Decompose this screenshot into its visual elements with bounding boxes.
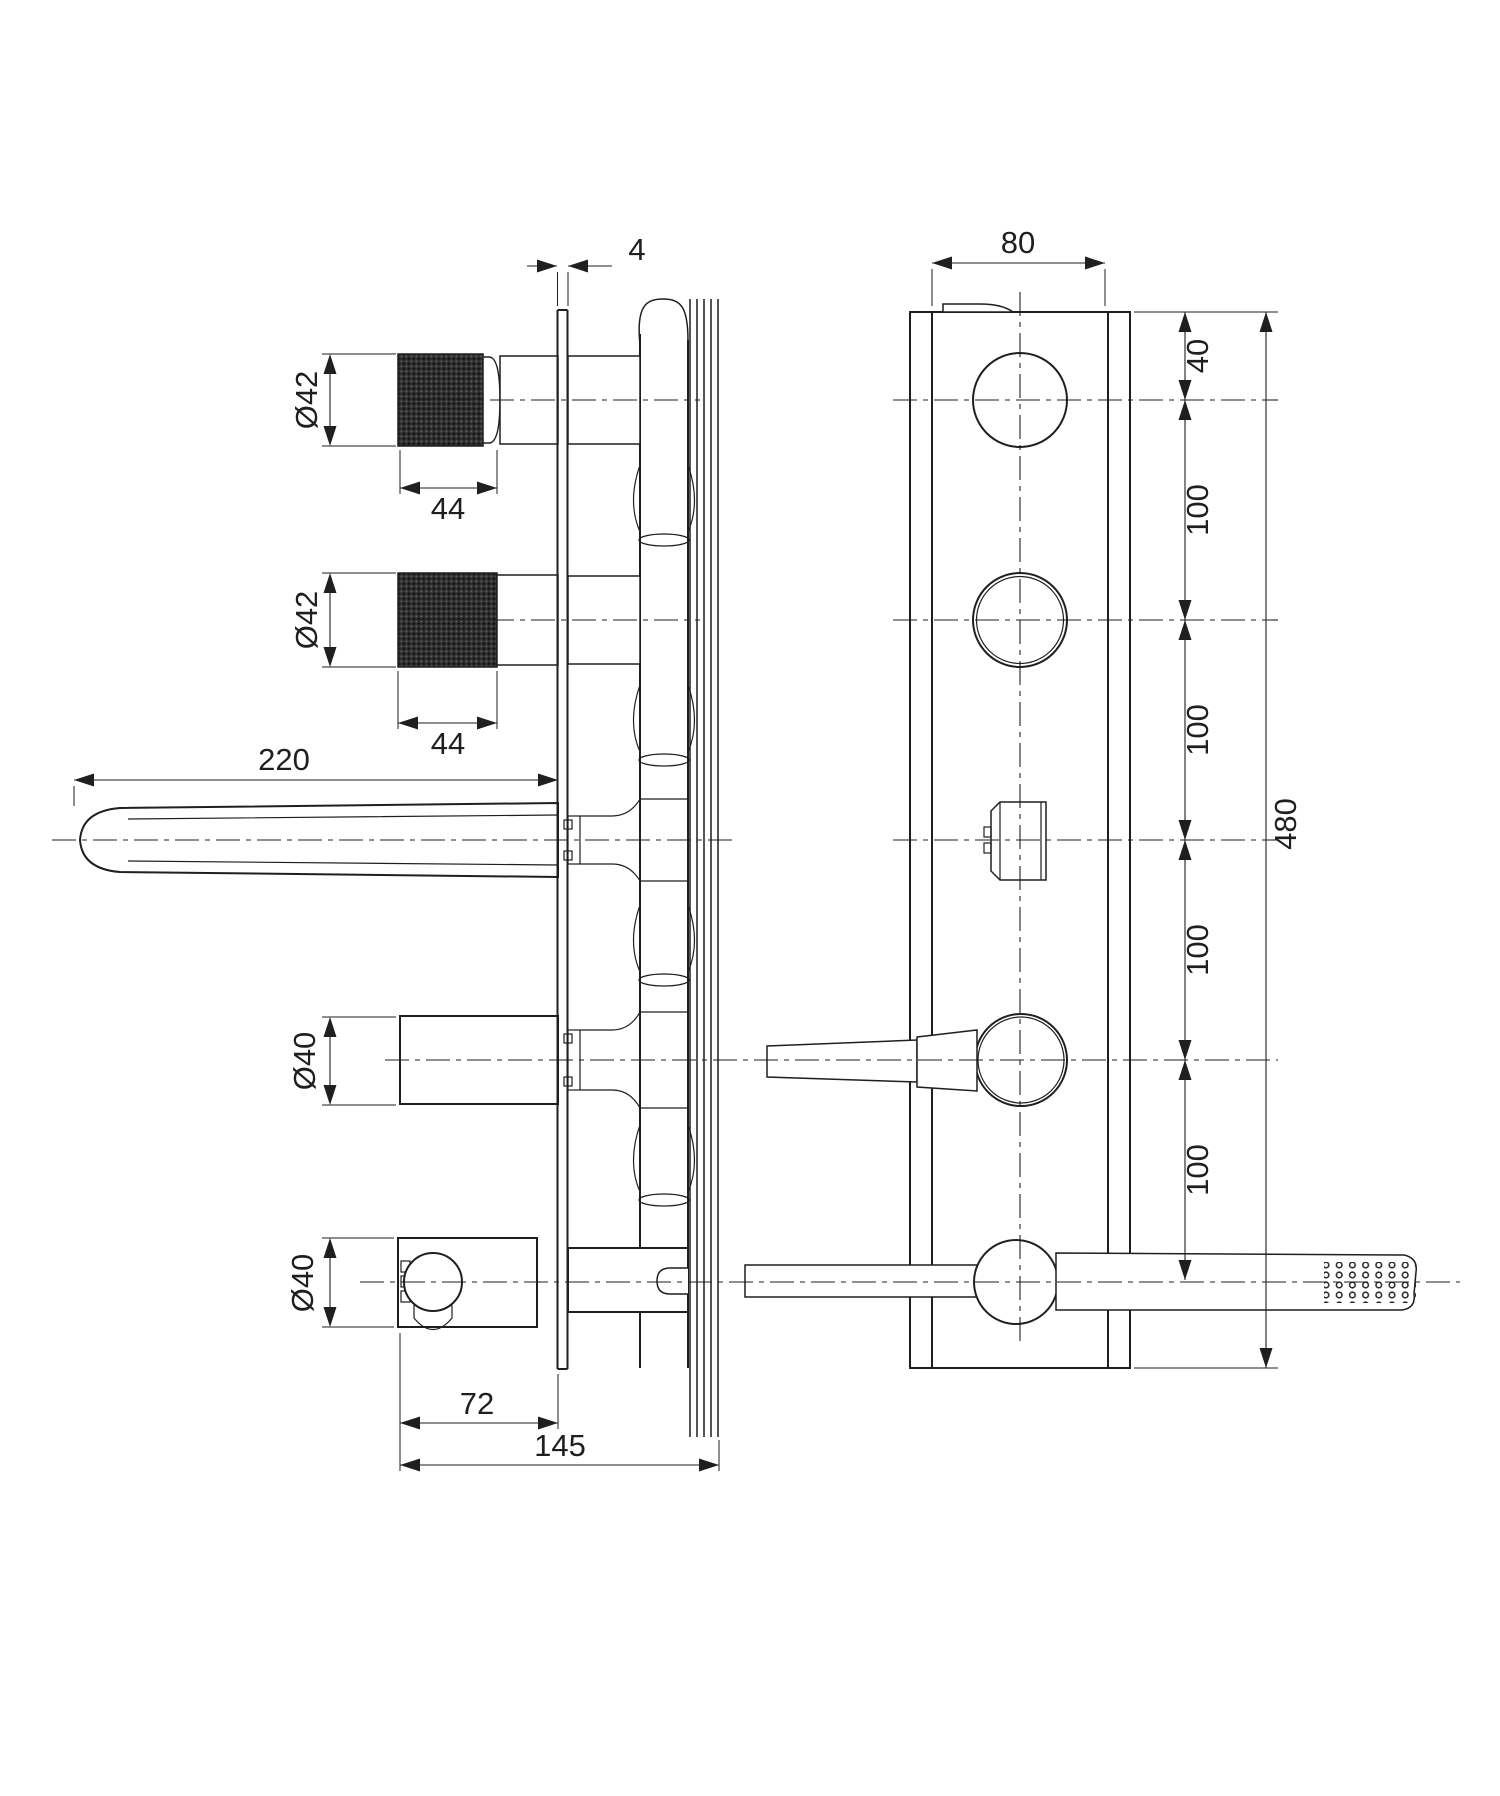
dim-holder-depth-label: 72 xyxy=(460,1386,494,1421)
dim-spout-length-label: 220 xyxy=(258,742,310,777)
technical-drawing: 4 Ø42 44 Ø42 44 220 Ø40 xyxy=(0,0,1500,1796)
dimension-plate-thickness: 4 xyxy=(527,232,646,306)
dim-total-depth-label: 145 xyxy=(534,1428,586,1463)
dimension-total-depth: 145 xyxy=(400,1428,719,1472)
dimension-top-handle-diameter: Ø42 xyxy=(289,354,396,446)
dim-holder-diameter-label: Ø40 xyxy=(285,1254,320,1313)
wall-section xyxy=(690,299,718,1437)
dimension-lever-diameter: Ø40 xyxy=(287,1017,396,1105)
side-view xyxy=(80,299,718,1437)
dim-total-height-label: 480 xyxy=(1268,798,1303,850)
dim-lever-diameter-label: Ø40 xyxy=(287,1032,322,1091)
dim-plate-thickness-label: 4 xyxy=(628,232,645,267)
handshower-handle xyxy=(745,1265,978,1297)
drawing-page: 4 Ø42 44 Ø42 44 220 Ø40 xyxy=(0,0,1500,1796)
body-top-dome xyxy=(639,299,688,345)
dimension-top-handle-length: 44 xyxy=(400,450,497,526)
dim-top-offset-label: 40 xyxy=(1180,339,1215,373)
dimension-total-height: 480 xyxy=(1260,312,1304,1368)
dim-spacing-4-label: 100 xyxy=(1180,1144,1215,1196)
dim-spacing-3-label: 100 xyxy=(1180,924,1215,976)
body-barrel-connectors xyxy=(634,465,695,1206)
dim-plate-width-label: 80 xyxy=(1001,225,1035,260)
front-view xyxy=(745,304,1416,1368)
front-spout xyxy=(984,802,1046,880)
dim-mid-handle-diameter-label: Ø42 xyxy=(289,591,324,650)
dimension-plate-width: 80 xyxy=(932,225,1105,306)
dim-spacing-2-label: 100 xyxy=(1180,704,1215,756)
handshower-holder xyxy=(398,1238,688,1330)
dimension-spout-length: 220 xyxy=(74,742,558,806)
dim-spacing-1-label: 100 xyxy=(1180,484,1215,536)
dim-mid-handle-length-label: 44 xyxy=(431,726,465,761)
front-panel-top-tab xyxy=(943,304,1013,312)
dimension-mid-handle-length: 44 xyxy=(398,671,497,761)
dim-top-handle-length-label: 44 xyxy=(431,491,465,526)
holder-outlet xyxy=(657,1268,688,1294)
dim-top-handle-diameter-label: Ø42 xyxy=(289,371,324,430)
body-column xyxy=(640,334,688,1368)
dimension-mid-handle-diameter: Ø42 xyxy=(289,573,396,667)
lever-rod xyxy=(767,1040,917,1082)
